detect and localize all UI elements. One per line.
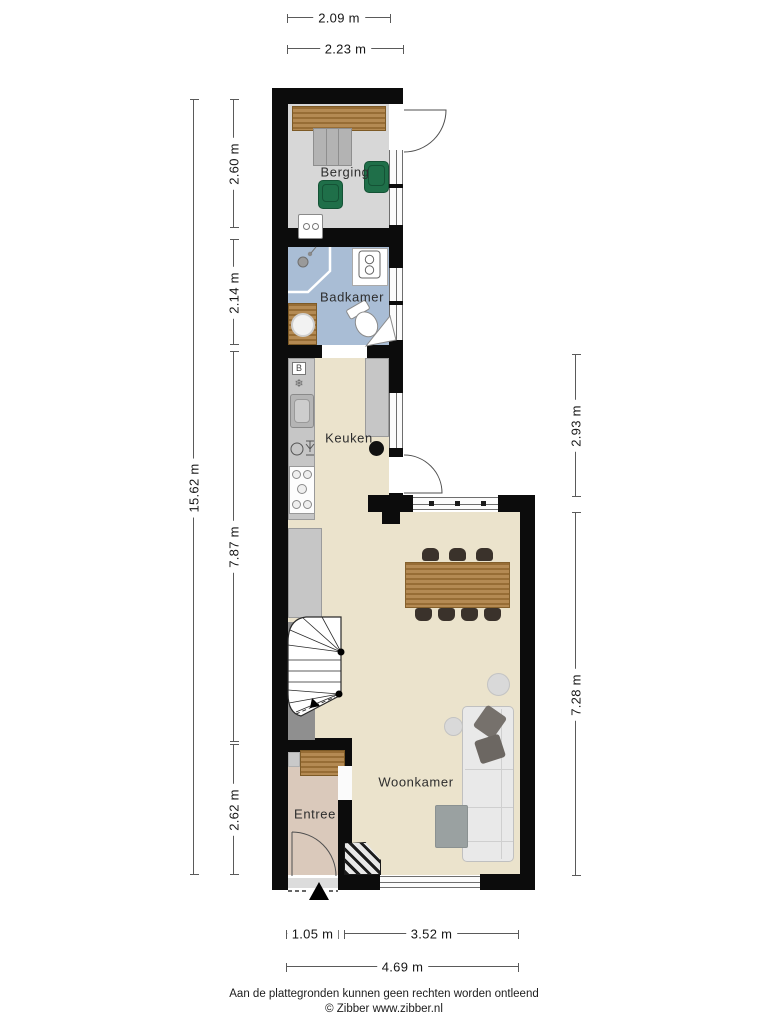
washer-icon [359, 251, 380, 278]
staircase [288, 617, 345, 716]
shower-hose [311, 247, 316, 253]
footer-disclaimer: Aan de plattegronden kunnen geen rechten… [0, 988, 768, 1000]
dishwasher-icon [291, 441, 314, 455]
kitchen-door-swing [404, 455, 442, 493]
room-label-keuken: Keuken [325, 431, 373, 446]
entrance-arrow-icon [309, 882, 329, 900]
plan-linework-layer [0, 0, 768, 1024]
room-label-berging: Berging [320, 165, 369, 180]
room-label-entree: Entree [294, 807, 336, 822]
floor-plan: 2.09 m 2.23 m 15.62 m 2.60 m 2.14 m 7.87… [0, 0, 768, 1024]
room-label-badkamer: Badkamer [320, 290, 384, 305]
footer-copyright: © Zibber www.zibber.nl [0, 1003, 768, 1015]
berging-door-swing [404, 110, 446, 152]
front-door-swing [292, 832, 336, 876]
room-label-woonkamer: Woonkamer [378, 775, 453, 790]
shower-head-icon [298, 257, 308, 267]
